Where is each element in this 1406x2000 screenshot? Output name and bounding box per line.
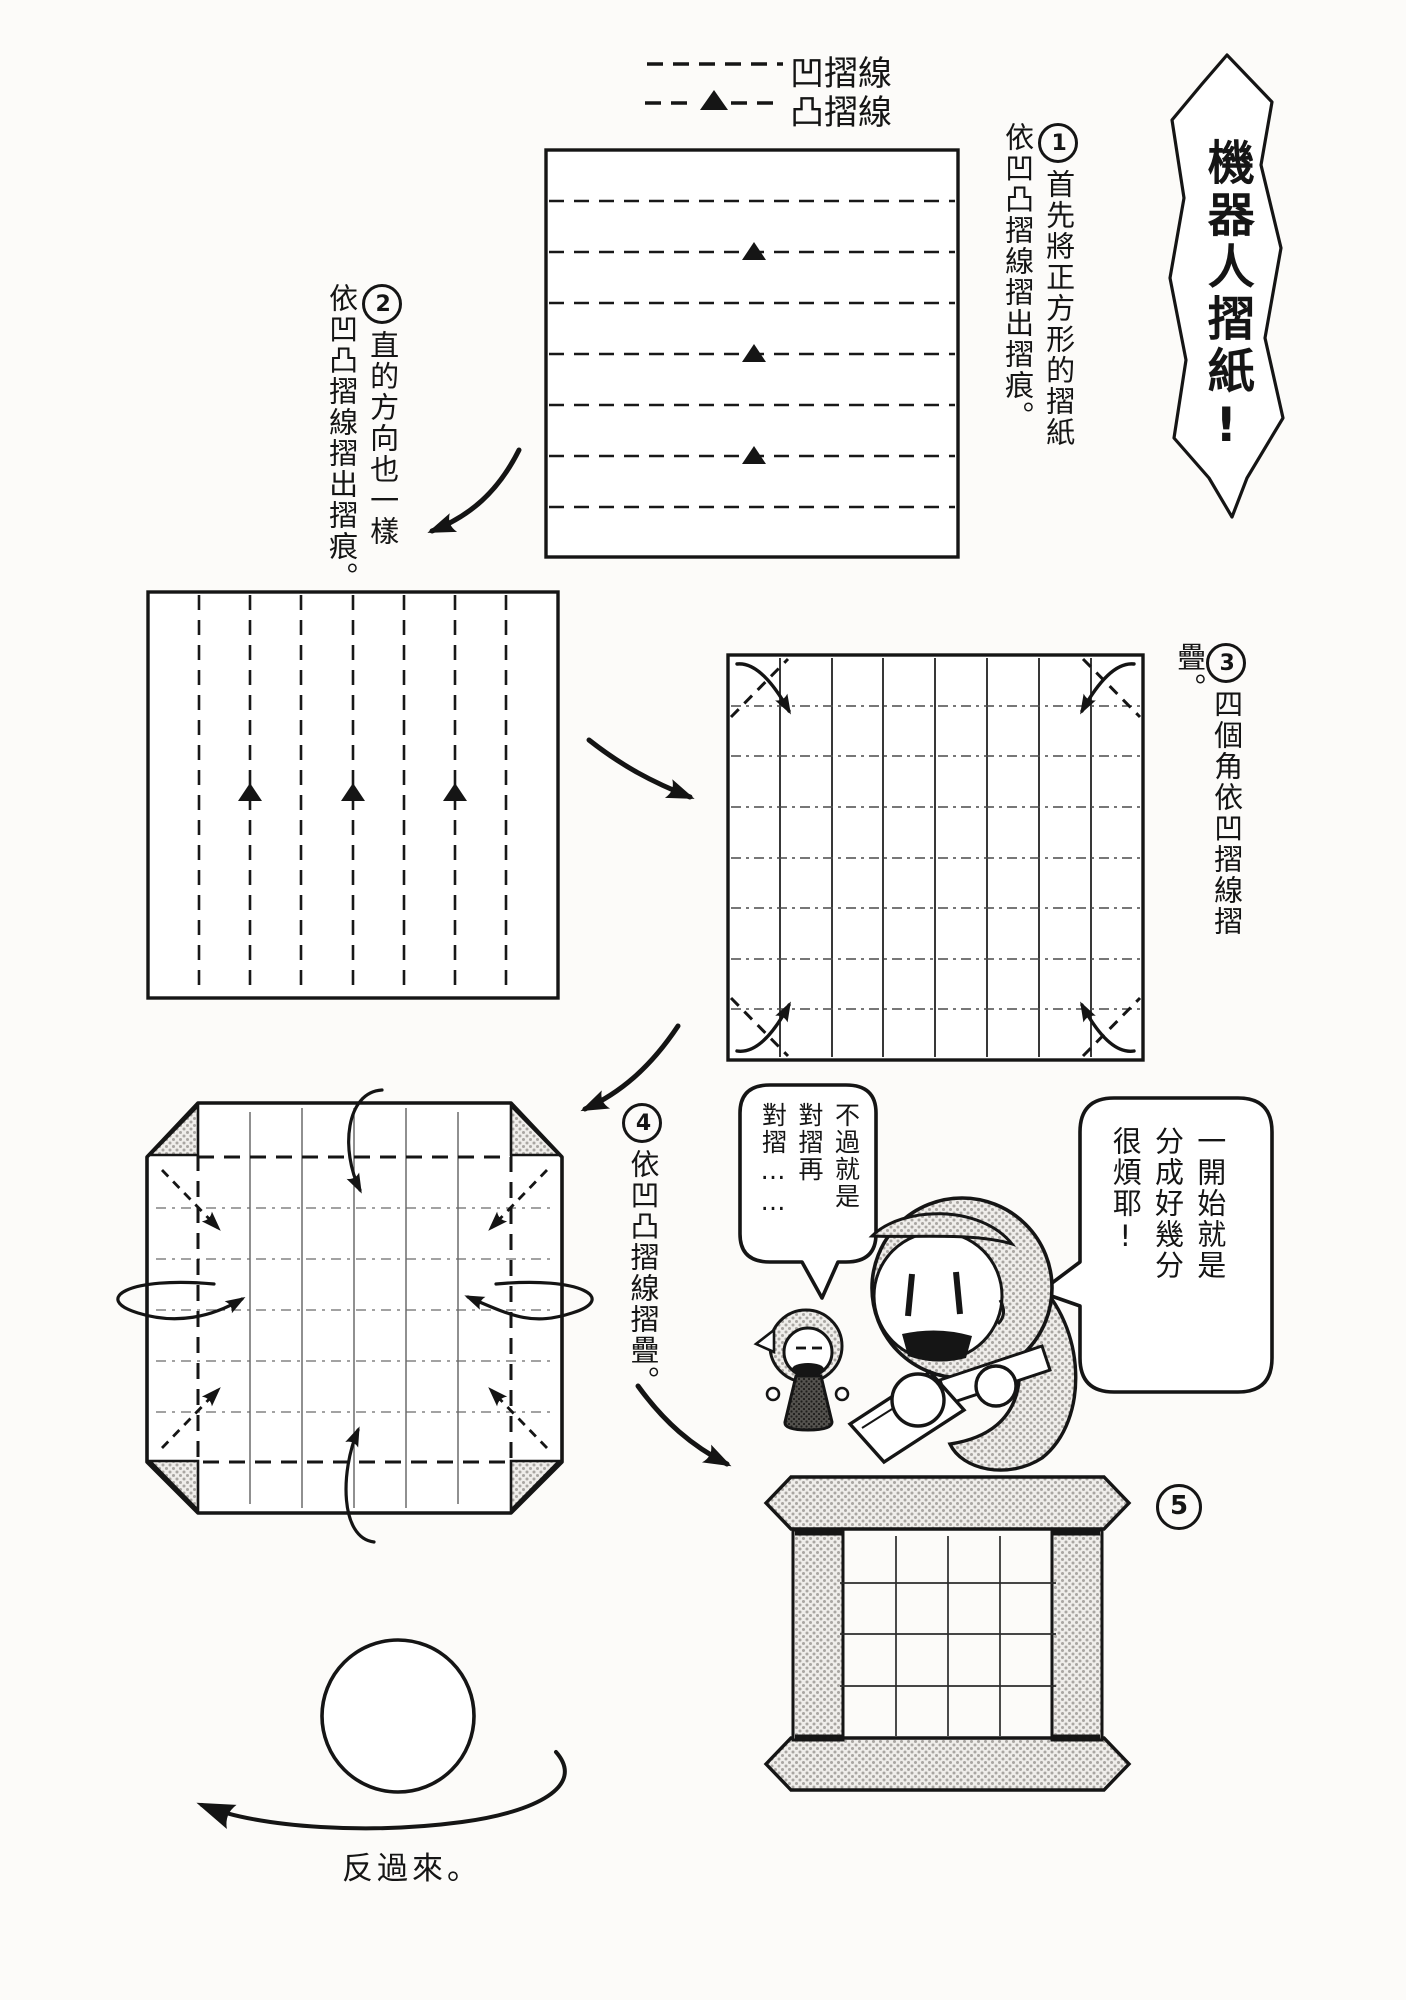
step4-number-badge: 4 bbox=[622, 1103, 662, 1143]
center-grid bbox=[840, 1536, 1056, 1736]
flip-over-symbol bbox=[202, 1640, 565, 1828]
step2-number-badge: 2 bbox=[362, 284, 402, 324]
step3-caption: 3四個角依凹摺線摺疊。 bbox=[1168, 642, 1250, 992]
left-column bbox=[793, 1530, 843, 1740]
legend-mountain-label: 凸摺線 bbox=[790, 85, 892, 134]
right-column bbox=[1052, 1530, 1102, 1740]
arrow-step2-to-step3 bbox=[589, 740, 690, 797]
step3-diagram bbox=[728, 655, 1143, 1060]
step2-caption: 2直的方向也一樣 依凹凸摺線摺出摺痕。 bbox=[320, 283, 406, 623]
step1-diagram bbox=[546, 150, 958, 557]
step1-caption: 1首先將正方形的摺紙 依凹凸摺線摺出摺痕。 bbox=[996, 122, 1082, 462]
step4-caption: 4依凹凸摺線摺疊。 bbox=[618, 1102, 666, 1402]
arrow-step3-to-step4 bbox=[585, 1026, 678, 1109]
step3-number-badge: 3 bbox=[1206, 643, 1246, 683]
step1-number-badge: 1 bbox=[1038, 123, 1078, 163]
small-robot-speech-text: 不過就是 對摺再 對摺…… bbox=[752, 1102, 866, 1252]
top-bar bbox=[766, 1477, 1129, 1529]
manga-page: 凹摺線 凸摺線 機器人摺紙! 1首先將正方形的摺紙 依凹凸摺線摺出摺痕。 2直的… bbox=[0, 0, 1406, 2000]
small-robot-character bbox=[756, 1310, 848, 1430]
page-title: 機器人摺紙! bbox=[1196, 138, 1256, 498]
flip-over-label: 反過來。 bbox=[342, 1843, 482, 1888]
step5-number-badge: 5 bbox=[1156, 1484, 1202, 1530]
mountain-fold-triangle-icon bbox=[700, 90, 728, 110]
big-robot-speech-text: 一開始就是 分成好幾分 很煩耶! bbox=[1102, 1126, 1233, 1366]
legend-mountain-line-sample bbox=[645, 90, 783, 110]
step2-diagram bbox=[148, 592, 558, 998]
step5-diagram bbox=[766, 1477, 1129, 1790]
step4-diagram bbox=[118, 1090, 592, 1542]
big-robot-character bbox=[850, 1198, 1076, 1470]
bottom-bar bbox=[766, 1738, 1129, 1790]
arrow-step1-to-step2 bbox=[432, 450, 519, 531]
